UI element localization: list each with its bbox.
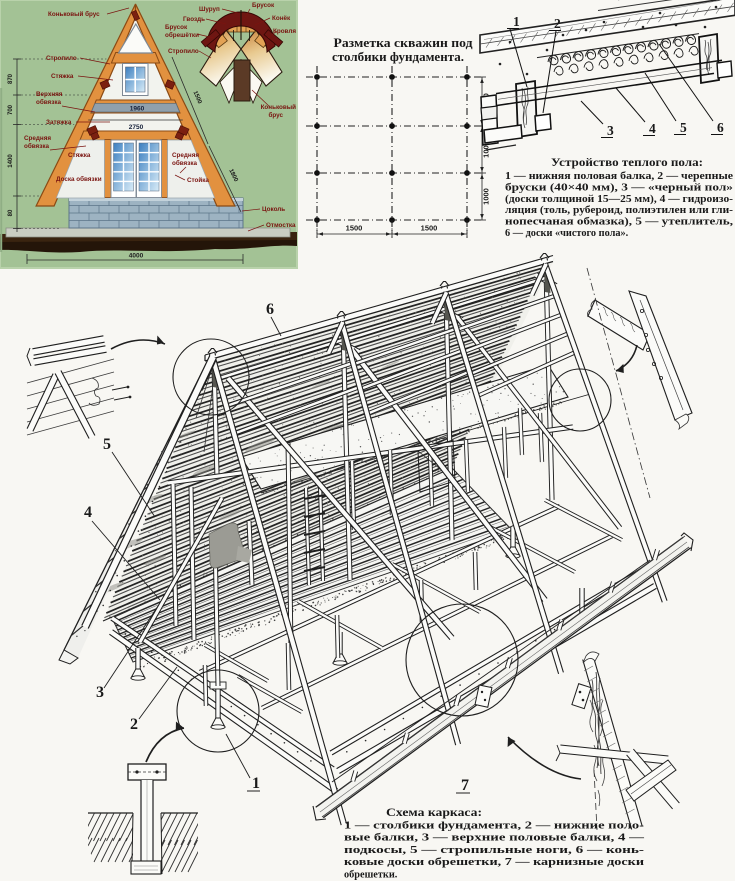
svg-text:Брусок: Брусок [252, 2, 275, 9]
svg-text:столбики фундамента.: столбики фундамента. [332, 50, 464, 64]
svg-text:обрешетки.: обрешетки. [344, 869, 398, 880]
svg-text:Затяжка: Затяжка [46, 119, 72, 126]
svg-text:Коньковый брус: Коньковый брус [48, 10, 100, 18]
svg-text:Стяжка: Стяжка [68, 152, 91, 159]
svg-text:нопесчаная обмазка), 5 — у: нопесчаная обмазка), 5 — утеплитель, [505, 217, 734, 228]
svg-text:Стойка: Стойка [187, 176, 209, 184]
svg-text:4: 4 [84, 504, 92, 521]
svg-text:6: 6 [266, 301, 274, 318]
svg-text:Доска обвязки: Доска обвязки [56, 175, 102, 183]
svg-text:Стропило: Стропило [168, 48, 199, 55]
svg-text:Разметка скважин под: Разметка скважин под [334, 36, 474, 50]
svg-text:Верхняя: Верхняя [36, 91, 63, 98]
svg-text:Устройство теплого пола:: Устройство теплого пола: [551, 157, 703, 169]
svg-text:870: 870 [8, 73, 14, 84]
svg-text:1: 1 [513, 14, 520, 29]
svg-text:1400: 1400 [8, 154, 14, 168]
svg-text:4000: 4000 [129, 253, 144, 260]
svg-text:1 — столбики фундамента, 2 — н: 1 — столбики фундамента, 2 — нижние поло… [344, 821, 645, 832]
svg-text:Конёк: Конёк [272, 15, 291, 22]
svg-text:6: 6 [717, 120, 724, 135]
svg-text:1 — нижняя половая балка, 2 —: 1 — нижняя половая балка, 2 — черепные [505, 171, 733, 182]
svg-text:3: 3 [96, 684, 104, 701]
svg-text:5: 5 [680, 120, 687, 135]
svg-text:1500: 1500 [421, 224, 438, 233]
svg-text:4: 4 [649, 121, 656, 136]
svg-text:Средняя: Средняя [24, 135, 51, 142]
svg-text:обрешётки: обрешётки [165, 31, 199, 39]
svg-text:Брусок: Брусок [165, 24, 188, 31]
svg-text:подкосы, 5 — стропильные ног: подкосы, 5 — стропильные ноги, 6 — конь- [344, 845, 645, 856]
svg-text:Схема каркаса:: Схема каркаса: [386, 807, 482, 819]
svg-text:1500: 1500 [346, 224, 363, 233]
svg-text:вые балки, 3 — верхние половые: вые балки, 3 — верхние половые балки, 4 … [344, 833, 645, 844]
svg-text:бруски (40×40 мм), 3 — «чер: бруски (40×40 мм), 3 — «черный пол» [505, 182, 733, 193]
svg-text:ковые доски обрешетки, 7 — кар: ковые доски обрешетки, 7 — карнизные дос… [344, 857, 644, 868]
svg-text:5: 5 [103, 436, 111, 453]
svg-text:1960: 1960 [130, 106, 145, 113]
svg-text:Средняя: Средняя [172, 152, 199, 159]
svg-text:80: 80 [8, 209, 14, 216]
svg-text:1: 1 [252, 775, 260, 792]
svg-text:брус: брус [269, 111, 284, 119]
svg-text:2750: 2750 [129, 124, 144, 131]
svg-text:7: 7 [461, 777, 469, 794]
svg-text:Отмостка: Отмостка [266, 222, 296, 229]
svg-text:Цоколь: Цоколь [262, 206, 285, 213]
svg-text:Шуруп: Шуруп [199, 6, 220, 13]
svg-text:(доски толщиной 15—25 мм), 4 —: (доски толщиной 15—25 мм), 4 — гидроизо- [505, 194, 734, 205]
svg-text:обвязка: обвязка [172, 159, 197, 167]
svg-text:6 — доски «чистого пола».: 6 — доски «чистого пола». [505, 228, 629, 239]
svg-text:обвязка: обвязка [36, 98, 61, 106]
svg-text:Стропило: Стропило [46, 55, 77, 62]
svg-text:2: 2 [554, 16, 561, 31]
svg-text:обвязка: обвязка [24, 142, 49, 150]
svg-text:ляция (толь, рубероид, полиэти: ляция (толь, рубероид, полиэтилен или гл… [505, 205, 734, 216]
svg-text:3: 3 [607, 123, 614, 138]
svg-text:Гвоздь: Гвоздь [183, 16, 205, 23]
svg-text:700: 700 [8, 104, 14, 115]
svg-text:2: 2 [130, 716, 138, 733]
svg-text:1000: 1000 [482, 188, 491, 205]
svg-text:Стяжка: Стяжка [51, 73, 74, 80]
svg-text:Коньковый: Коньковый [261, 103, 297, 111]
